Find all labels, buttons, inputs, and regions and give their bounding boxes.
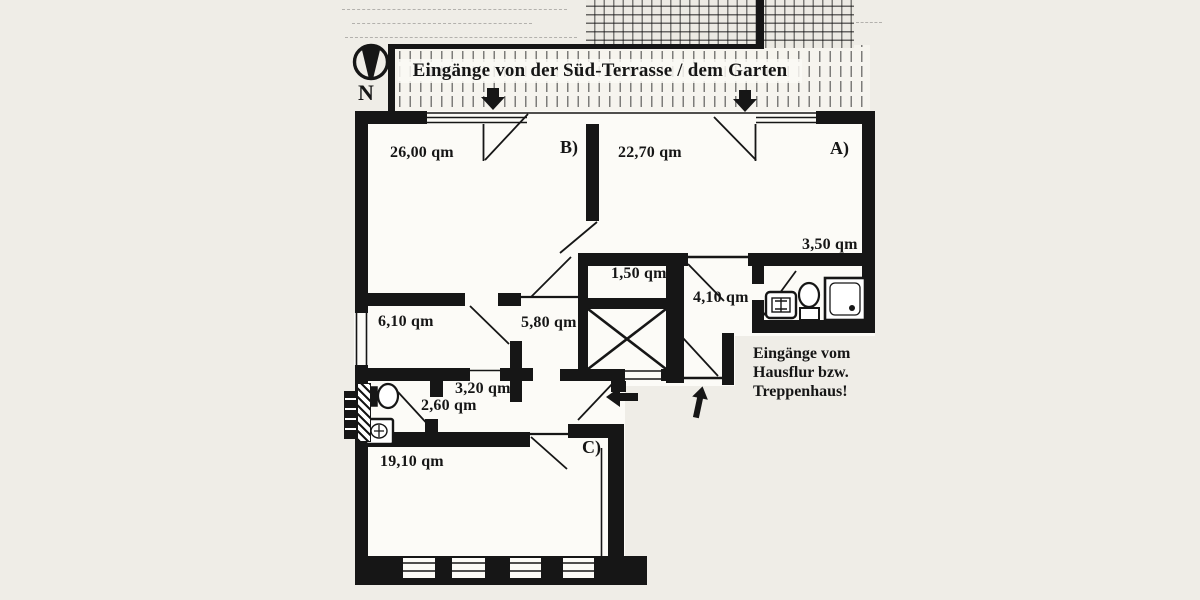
wall — [752, 300, 764, 320]
wall — [752, 320, 875, 333]
door-swing — [714, 117, 756, 160]
wall — [498, 293, 521, 306]
compass-label: N — [358, 80, 374, 106]
room-label-a-tag: A) — [830, 138, 849, 159]
terrace-borders — [388, 0, 764, 111]
wall — [355, 293, 465, 306]
room-label-bath-c: 2,60 qm — [421, 397, 477, 415]
wall — [510, 341, 522, 368]
wall — [355, 556, 647, 585]
window — [452, 558, 485, 578]
door-swing — [560, 222, 597, 253]
wall — [748, 253, 875, 266]
room-label-kitchen: 6,10 qm — [378, 313, 434, 331]
wall — [430, 381, 443, 397]
toilet-icon — [369, 384, 398, 408]
note-line: Eingänge vom — [753, 344, 850, 363]
floor-plan-page: Eingänge von der Süd-Terrasse / dem Gart… — [0, 0, 1200, 600]
down-arrow-icon — [481, 88, 505, 110]
room-label-closet: 1,50 qm — [611, 265, 667, 283]
door-swing — [531, 437, 567, 469]
shower-icon — [825, 278, 865, 320]
up-arrow-icon — [688, 385, 710, 420]
toilet-icon — [799, 283, 819, 320]
room-label-entry-hall: 4,10 qm — [693, 289, 749, 307]
shaft-x-icon — [588, 309, 666, 369]
wall — [578, 298, 684, 309]
wall — [586, 124, 599, 221]
room-label-b-area: 26,00 qm — [390, 144, 454, 162]
room-label-c-area: 19,10 qm — [380, 453, 444, 471]
window — [563, 558, 594, 578]
window — [403, 558, 435, 578]
wall — [578, 253, 588, 380]
north-arrow-icon — [355, 44, 388, 79]
door-swing — [578, 382, 614, 420]
wall — [661, 369, 668, 381]
room-label-a-area: 22,70 qm — [618, 144, 682, 162]
wall — [608, 424, 624, 564]
door-swing — [531, 257, 571, 297]
door-swing — [683, 338, 718, 376]
wall — [666, 253, 684, 383]
wall — [752, 266, 764, 284]
wall — [510, 381, 522, 402]
floor-plan-drawing — [0, 0, 1200, 600]
window — [510, 558, 541, 578]
down-arrow-icon — [733, 90, 757, 112]
note-line: Hausflur bzw. — [753, 363, 850, 382]
sink-icon — [766, 292, 796, 318]
room-label-bath-a: 3,50 qm — [802, 236, 858, 254]
wall — [568, 424, 620, 438]
room-label-b-tag: B) — [560, 137, 578, 158]
wall — [560, 369, 625, 381]
door-swing — [470, 306, 509, 344]
terrace-caption: Eingänge von der Süd-Terrasse / dem Gart… — [398, 59, 802, 83]
room-label-corridor: 3,20 qm — [455, 380, 511, 398]
radiator-icon — [344, 391, 357, 439]
wall — [355, 368, 470, 381]
hall-entrance-note: Eingänge vom Hausflur bzw. Treppenhaus! — [753, 344, 850, 401]
room-label-c-tag: C) — [582, 437, 601, 458]
room-label-inner-hall: 5,80 qm — [521, 314, 577, 332]
note-line: Treppenhaus! — [753, 382, 850, 401]
wall-hatch-strip — [357, 383, 371, 442]
